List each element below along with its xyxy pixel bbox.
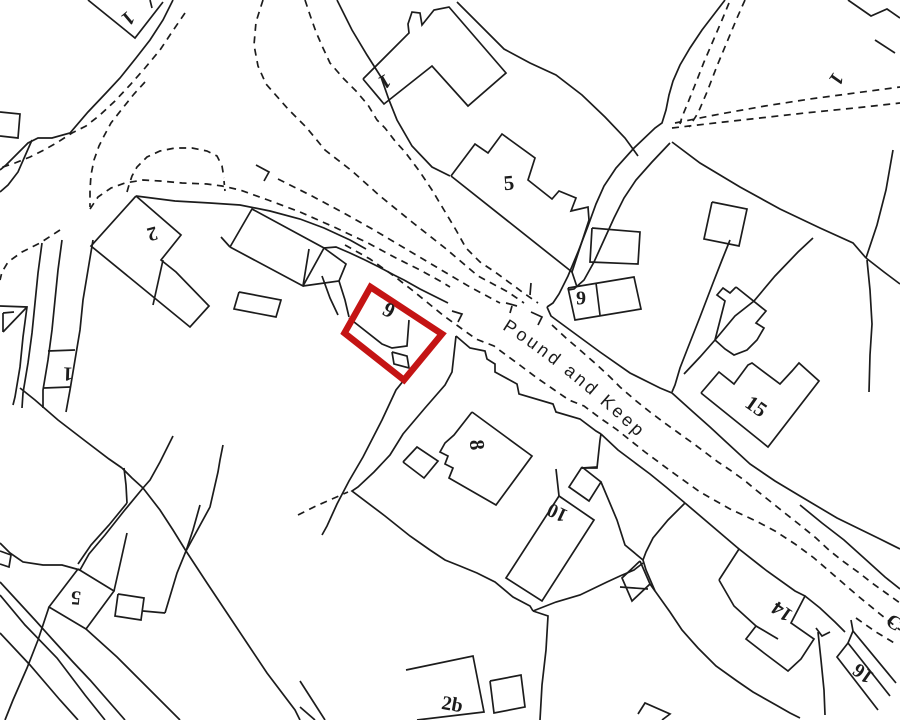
svg-text:5: 5 [503, 170, 516, 195]
svg-text:9: 9 [576, 288, 586, 310]
svg-text:2b: 2b [440, 692, 465, 717]
svg-text:5: 5 [70, 586, 82, 609]
svg-text:1: 1 [63, 362, 74, 384]
svg-text:8: 8 [465, 439, 490, 452]
